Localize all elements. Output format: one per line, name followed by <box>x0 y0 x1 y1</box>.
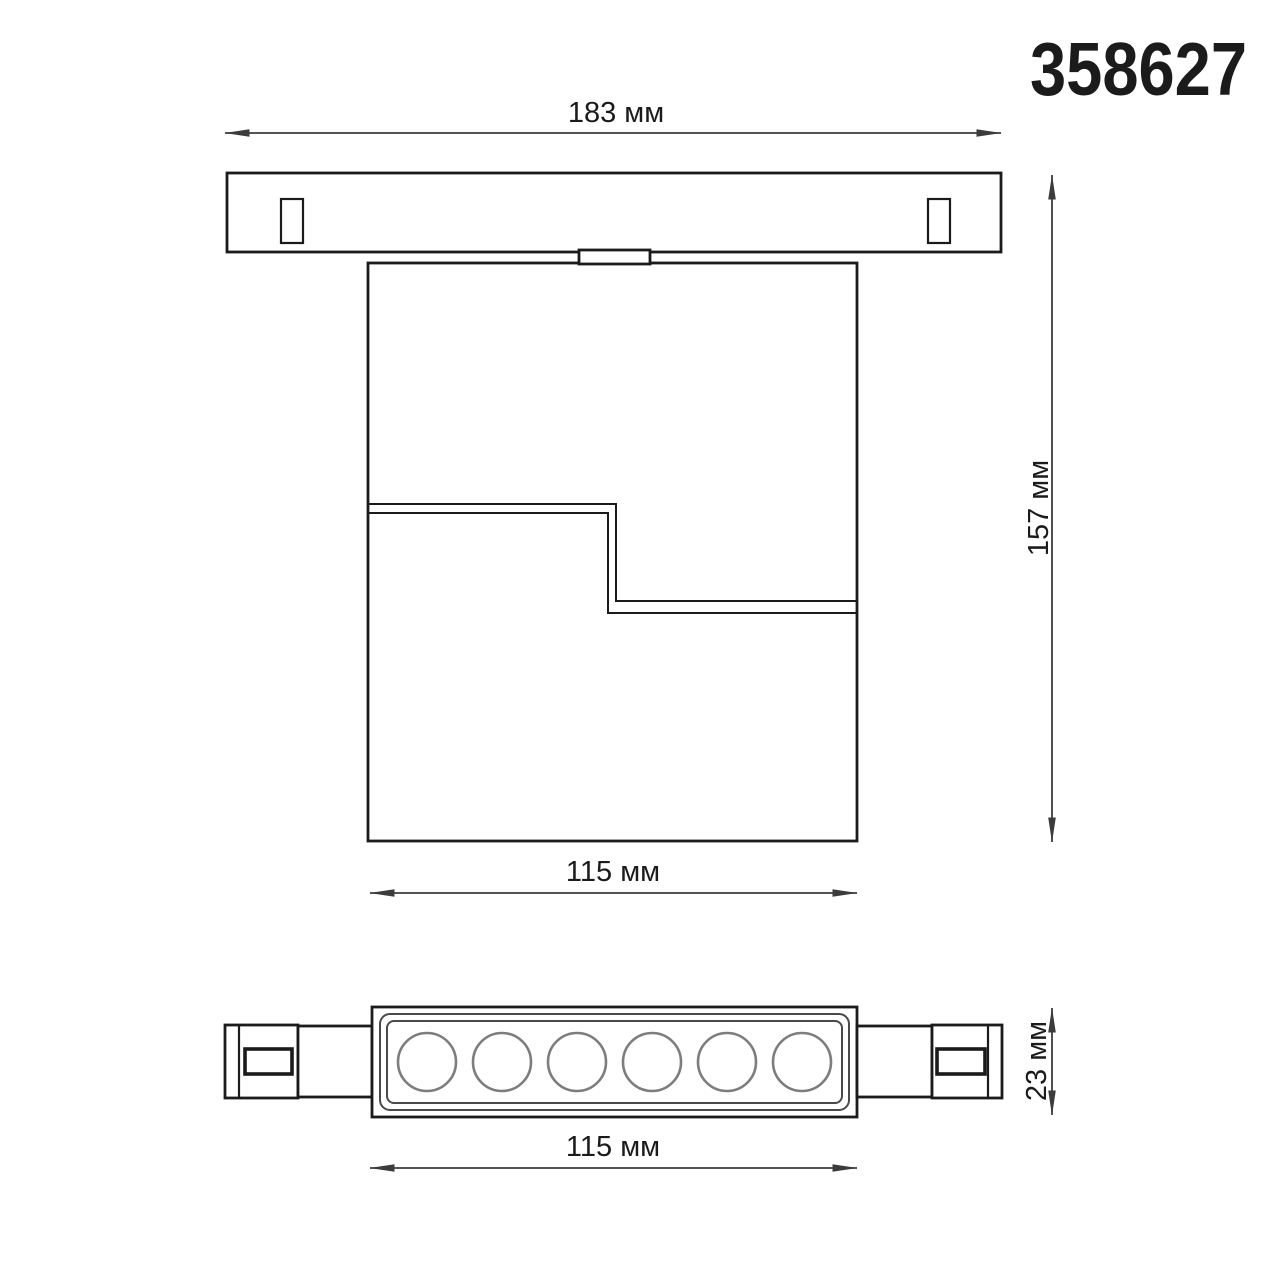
technical-drawing-canvas: 358627 183 мм 157 мм <box>0 0 1280 1280</box>
dimension-track-length: 183 мм <box>225 97 1001 133</box>
dimension-label-183: 183 мм <box>568 97 664 129</box>
dimension-label-23: 23 мм <box>1021 1021 1053 1101</box>
bottom-view: 23 мм 115 мм <box>225 1007 1053 1168</box>
led-lens <box>548 1033 606 1091</box>
led-lens <box>773 1033 831 1091</box>
dimension-body-width-bottom: 115 мм <box>370 1131 857 1168</box>
product-code: 358627 <box>1030 27 1247 111</box>
dimension-label-115-bottom: 115 мм <box>566 1131 660 1163</box>
dimension-label-157: 157 мм <box>1023 460 1055 556</box>
connector-left-port <box>245 1049 292 1074</box>
track-adapter-stub <box>579 250 650 264</box>
dimension-label-115-top: 115 мм <box>566 856 660 888</box>
dimension-body-width: 115 мм <box>370 856 857 893</box>
connector-right-arm <box>857 1026 932 1097</box>
dimension-overall-height: 157 мм <box>1023 175 1055 842</box>
fixture-body <box>368 263 857 841</box>
connector-left-arm <box>298 1026 372 1097</box>
track-profile <box>227 173 1001 252</box>
dimension-fixture-depth: 23 мм <box>1021 1008 1053 1115</box>
dimension-drawing-page: 358627 183 мм 157 мм <box>0 0 1280 1280</box>
connector-right-port <box>937 1049 985 1074</box>
led-lens <box>623 1033 681 1091</box>
led-lens <box>398 1033 456 1091</box>
led-lens <box>698 1033 756 1091</box>
front-view: 183 мм 157 мм 115 мм <box>225 97 1055 893</box>
led-lens <box>473 1033 531 1091</box>
